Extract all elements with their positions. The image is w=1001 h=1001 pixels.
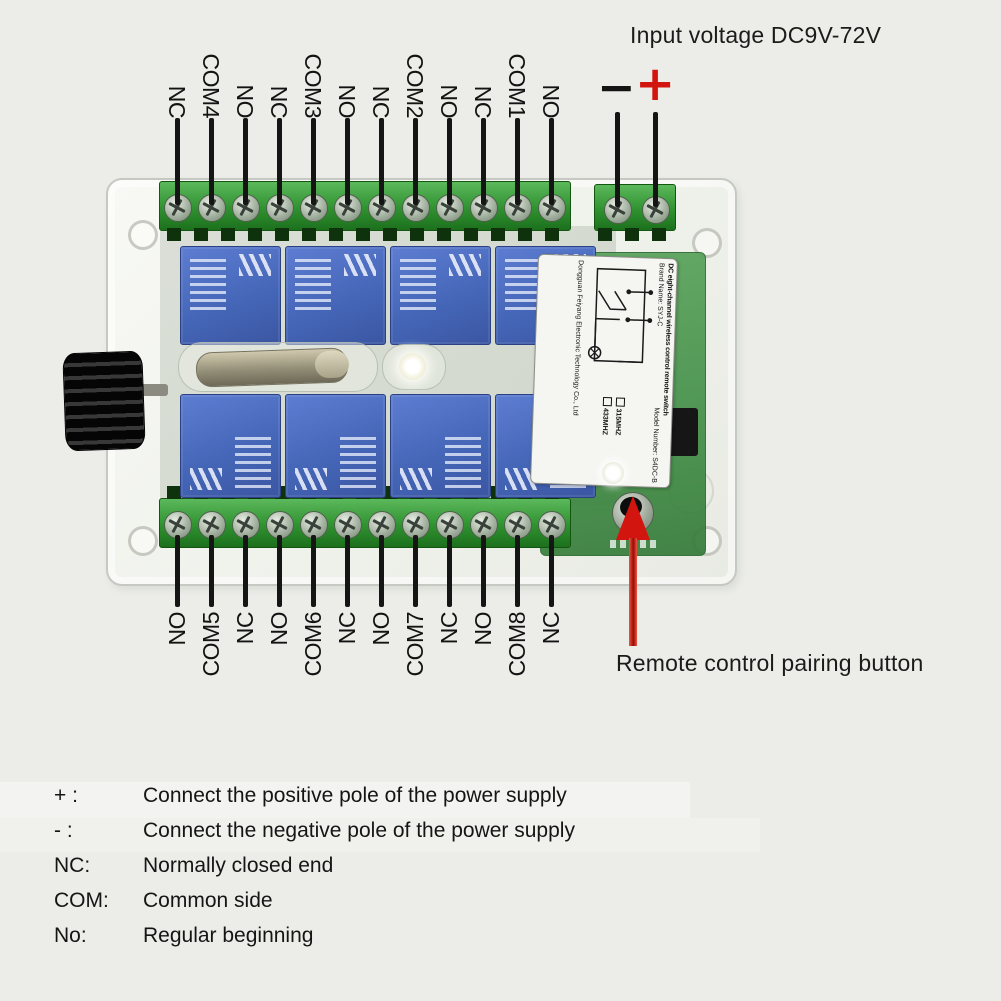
legend-row: No: Regular beginning [54, 924, 575, 950]
spec-sticker: DC eight-channel wireless control remote… [530, 254, 678, 489]
relay-2 [285, 246, 386, 345]
bottom-terminal-label: NC [538, 612, 564, 712]
terminal-wire [209, 118, 214, 205]
top-terminal-label: NO [436, 18, 462, 118]
terminal-wire [345, 118, 350, 205]
bottom-terminal-label: NO [470, 612, 496, 712]
top-terminal-label: NO [334, 18, 360, 118]
relay-logo-icon [239, 254, 271, 276]
arrow-head [616, 496, 650, 540]
legend-term: COM: [54, 889, 143, 913]
legend-desc: Regular beginning [143, 924, 313, 948]
spec-sticker-content: DC eight-channel wireless control remote… [531, 255, 677, 488]
relay-6 [285, 394, 386, 498]
relay-3 [390, 246, 491, 345]
relay-markings [295, 256, 331, 310]
legend-term: NC: [54, 854, 143, 878]
legend-desc: Connect the negative pole of the power s… [143, 819, 575, 843]
sticker-model: Model Number: S4DC-B [650, 407, 660, 483]
relay-logo-icon [190, 468, 222, 490]
terminal-wire [277, 118, 282, 205]
bottom-terminal-label: COM7 [402, 612, 428, 712]
legend-row: + : Connect the positive pole of the pow… [54, 784, 575, 810]
pairing-led [602, 462, 624, 484]
terminal-wire [515, 118, 520, 205]
relay-markings [400, 256, 436, 310]
wiring-schematic [581, 260, 655, 392]
terminal-wire [209, 535, 214, 607]
legend: + : Connect the positive pole of the pow… [54, 784, 575, 959]
relay-markings [445, 434, 481, 488]
legend-desc: Connect the positive pole of the power s… [143, 784, 567, 808]
relay-markings [340, 434, 376, 488]
antenna-connector [62, 351, 145, 452]
plus-symbol: + [635, 60, 675, 108]
terminal-wire [243, 535, 248, 607]
bottom-terminal-label: NC [436, 612, 462, 712]
case-screw-boss [128, 526, 158, 556]
terminal-wire [481, 118, 486, 205]
terminal-wire [447, 535, 452, 607]
status-led [399, 353, 426, 380]
relay-logo-icon [295, 468, 327, 490]
top-terminal-label: NC [368, 18, 394, 118]
top-terminal-label: COM1 [504, 18, 530, 118]
checkbox-icon [616, 397, 625, 406]
relay-5 [180, 394, 281, 498]
freq-option-315: 315MHZ [614, 397, 625, 435]
legend-term: + : [54, 784, 143, 808]
terminal-wire [311, 118, 316, 205]
checkbox-icon [603, 397, 612, 406]
power-wire [615, 112, 620, 207]
terminal-wire [311, 535, 316, 607]
relay-logo-icon [449, 254, 481, 276]
top-terminal-label: NC [470, 18, 496, 118]
legend-desc: Common side [143, 889, 273, 913]
legend-row: - : Connect the negative pole of the pow… [54, 819, 575, 845]
terminal-wire [481, 535, 486, 607]
top-terminal-label: NC [266, 18, 292, 118]
legend-term: No: [54, 924, 143, 948]
relay-1 [180, 246, 281, 345]
bottom-terminal-label: COM6 [300, 612, 326, 712]
legend-desc: Normally closed end [143, 854, 333, 878]
top-terminal-label: COM2 [402, 18, 428, 118]
input-voltage-label: Input voltage DC9V-72V [630, 22, 881, 49]
relay-markings [190, 256, 226, 310]
top-terminal-label: NO [232, 18, 258, 118]
top-terminal-teeth [167, 228, 561, 241]
minus-symbol: − [597, 64, 636, 110]
terminal-wire [243, 118, 248, 205]
relay-markings [235, 434, 271, 488]
terminal-wire [413, 118, 418, 205]
power-wire [653, 112, 658, 207]
terminal-wire [379, 535, 384, 607]
terminal-wire [345, 535, 350, 607]
red-arrow-icon [616, 496, 650, 648]
terminal-wire [549, 535, 554, 607]
case-screw-boss [128, 220, 158, 250]
power-terminal-teeth [598, 228, 670, 241]
bottom-terminal-label: NO [164, 612, 190, 712]
terminal-wire [379, 118, 384, 205]
terminal-wire [447, 118, 452, 205]
top-terminal-label: NC [164, 18, 190, 118]
top-terminal-label: NO [538, 18, 564, 118]
terminal-wire [175, 535, 180, 607]
freq-option-433: 433MHZ [601, 397, 612, 435]
relay-logo-icon [400, 468, 432, 490]
sticker-brand: Brand Name: SYJ-C [656, 263, 665, 327]
bottom-terminal-label: NC [334, 612, 360, 712]
pairing-button-label: Remote control pairing button [616, 650, 924, 677]
bottom-terminal-label: COM8 [504, 612, 530, 712]
terminal-wire [515, 535, 520, 607]
arrow-shaft [629, 538, 637, 646]
relay-logo-icon [344, 254, 376, 276]
top-terminal-label: COM4 [198, 18, 224, 118]
terminal-wire [413, 535, 418, 607]
wiring-diagram: Input voltage DC9V-72V − + DC eight-chan… [0, 0, 1001, 1001]
bottom-terminal-label: NC [232, 612, 258, 712]
bottom-terminal-label: NO [266, 612, 292, 712]
legend-term: - : [54, 819, 143, 843]
terminal-wire [277, 535, 282, 607]
terminal-wire [175, 118, 180, 205]
legend-row: COM: Common side [54, 889, 575, 915]
fuse-cylinder [195, 347, 348, 387]
bottom-terminal-label: COM5 [198, 612, 224, 712]
legend-row: NC: Normally closed end [54, 854, 575, 880]
relay-7 [390, 394, 491, 498]
top-terminal-label: COM3 [300, 18, 326, 118]
bottom-terminal-label: NO [368, 612, 394, 712]
terminal-wire [549, 118, 554, 205]
